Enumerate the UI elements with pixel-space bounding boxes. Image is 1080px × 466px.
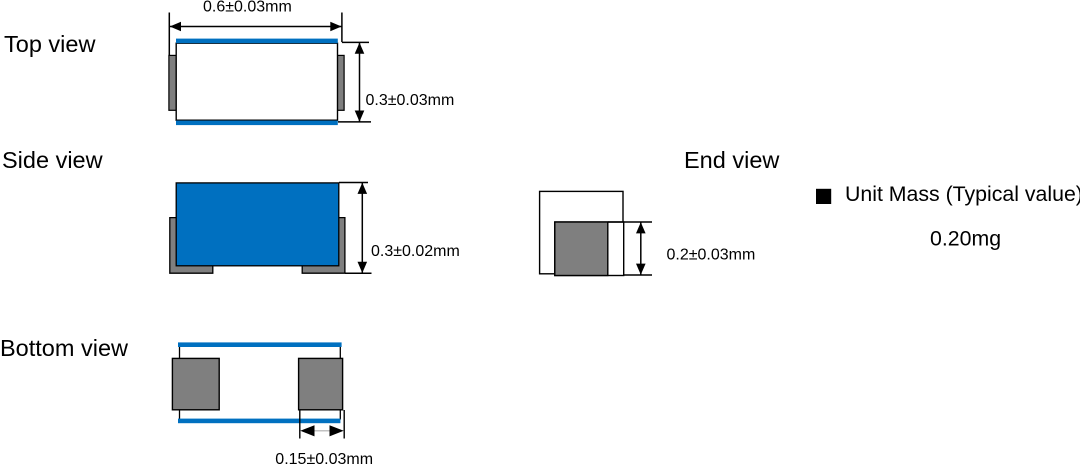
svg-text:Unit Mass (Typical value): Unit Mass (Typical value) bbox=[845, 182, 1080, 206]
svg-text:0.3±0.03mm: 0.3±0.03mm bbox=[366, 92, 455, 109]
svg-text:Bottom view: Bottom view bbox=[0, 335, 129, 361]
svg-text:0.15±0.03mm: 0.15±0.03mm bbox=[275, 451, 373, 466]
svg-text:0.20mg: 0.20mg bbox=[930, 226, 1001, 250]
svg-text:End view: End view bbox=[684, 147, 780, 173]
svg-text:Top view: Top view bbox=[4, 31, 96, 57]
svg-text:0.3±0.02mm: 0.3±0.02mm bbox=[371, 243, 460, 260]
svg-text:Side view: Side view bbox=[2, 147, 104, 173]
svg-text:0.2±0.03mm: 0.2±0.03mm bbox=[667, 247, 756, 264]
svg-text:0.6±0.03mm: 0.6±0.03mm bbox=[203, 0, 292, 16]
